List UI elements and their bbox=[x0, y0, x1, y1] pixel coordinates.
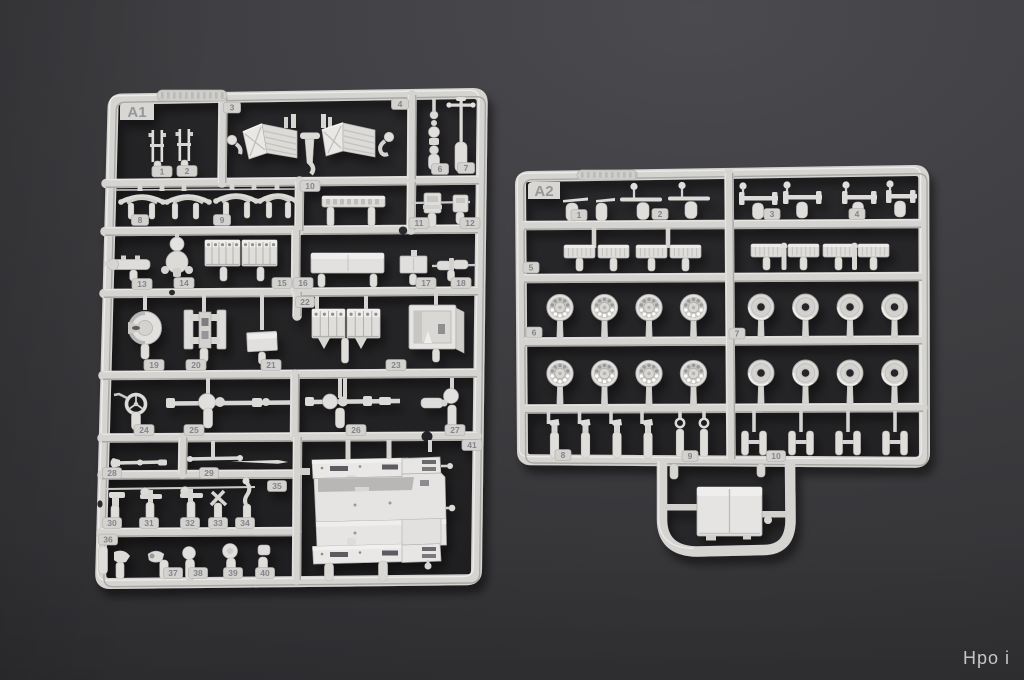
svg-text:3: 3 bbox=[230, 103, 235, 113]
svg-text:25: 25 bbox=[189, 425, 199, 435]
svg-text:7: 7 bbox=[464, 163, 469, 173]
svg-text:10: 10 bbox=[305, 181, 315, 191]
svg-text:41: 41 bbox=[467, 440, 477, 450]
svg-text:4: 4 bbox=[855, 209, 860, 219]
svg-text:2: 2 bbox=[658, 209, 663, 219]
svg-text:11: 11 bbox=[415, 218, 424, 228]
svg-text:36: 36 bbox=[103, 535, 113, 545]
svg-text:38: 38 bbox=[193, 568, 203, 578]
svg-text:7: 7 bbox=[735, 329, 740, 339]
svg-text:8: 8 bbox=[561, 450, 566, 460]
svg-text:24: 24 bbox=[139, 425, 149, 435]
svg-text:26: 26 bbox=[351, 425, 361, 435]
svg-text:37: 37 bbox=[168, 568, 178, 578]
svg-text:15: 15 bbox=[277, 278, 287, 288]
svg-text:A1: A1 bbox=[127, 104, 146, 121]
svg-text:14: 14 bbox=[179, 278, 189, 288]
svg-text:1: 1 bbox=[160, 167, 165, 177]
svg-text:3: 3 bbox=[770, 209, 775, 219]
svg-text:31: 31 bbox=[144, 518, 154, 528]
svg-text:22: 22 bbox=[300, 297, 310, 307]
svg-text:34: 34 bbox=[240, 518, 250, 528]
svg-text:1: 1 bbox=[577, 210, 582, 220]
svg-text:18: 18 bbox=[456, 278, 466, 288]
svg-text:12: 12 bbox=[465, 218, 475, 228]
svg-text:40: 40 bbox=[260, 568, 270, 578]
svg-text:13: 13 bbox=[137, 279, 147, 289]
svg-text:23: 23 bbox=[391, 360, 401, 370]
svg-text:A2: A2 bbox=[534, 183, 553, 200]
svg-text:33: 33 bbox=[213, 518, 223, 528]
svg-text:21: 21 bbox=[266, 360, 276, 370]
svg-text:6: 6 bbox=[532, 328, 537, 338]
svg-text:39: 39 bbox=[228, 568, 238, 578]
svg-text:2: 2 bbox=[185, 166, 190, 176]
svg-text:35: 35 bbox=[272, 481, 282, 491]
svg-text:30: 30 bbox=[107, 518, 117, 528]
svg-text:27: 27 bbox=[450, 425, 460, 435]
svg-text:8: 8 bbox=[138, 215, 143, 225]
svg-text:4: 4 bbox=[398, 99, 403, 109]
svg-text:10: 10 bbox=[771, 451, 781, 461]
svg-text:19: 19 bbox=[149, 360, 159, 370]
svg-text:32: 32 bbox=[185, 518, 195, 528]
svg-text:20: 20 bbox=[191, 360, 201, 370]
svg-text:5: 5 bbox=[529, 263, 534, 273]
svg-text:29: 29 bbox=[204, 468, 214, 478]
svg-text:28: 28 bbox=[107, 468, 117, 478]
svg-text:9: 9 bbox=[220, 215, 225, 225]
svg-text:16: 16 bbox=[298, 278, 308, 288]
svg-text:6: 6 bbox=[438, 164, 443, 174]
svg-text:17: 17 bbox=[421, 278, 431, 288]
svg-text:9: 9 bbox=[688, 451, 693, 461]
